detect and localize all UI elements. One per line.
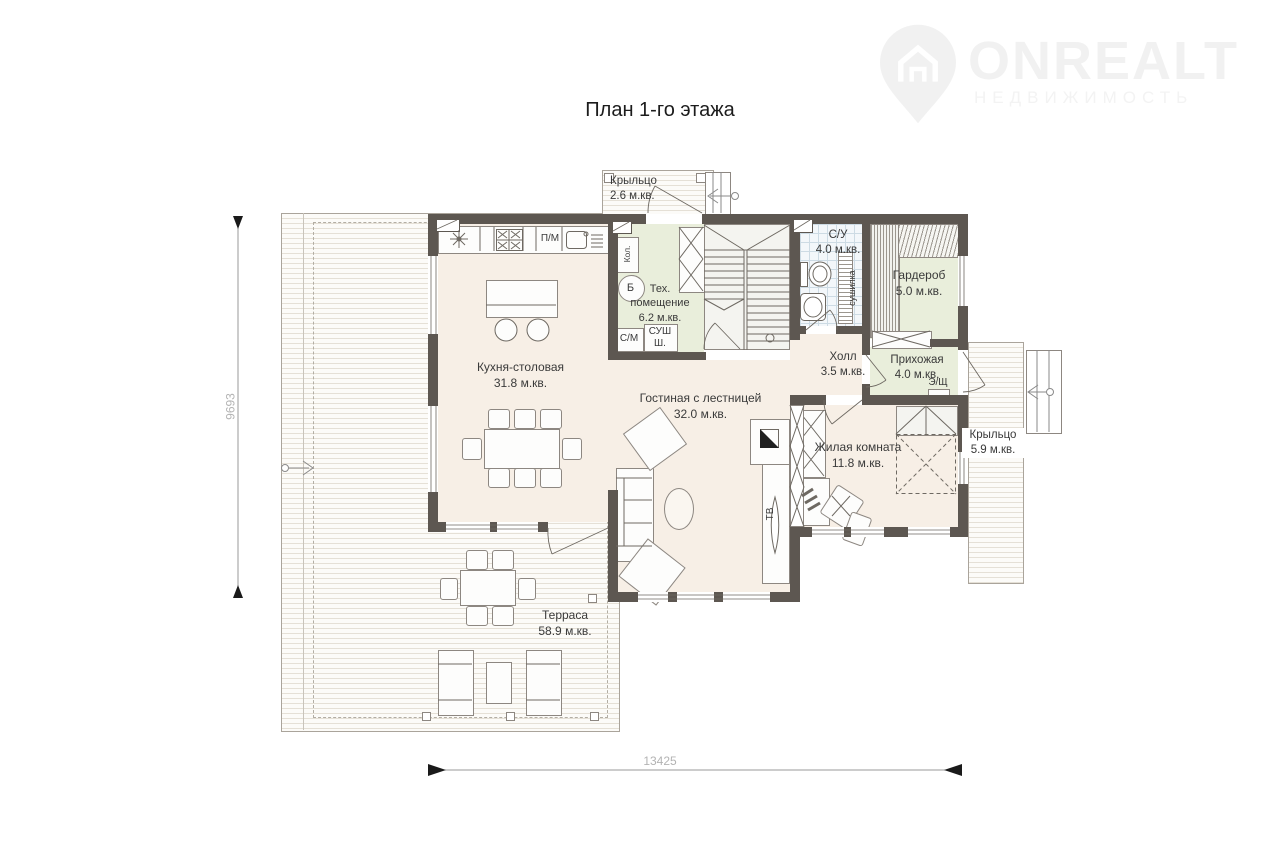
room-label-kitchen: Кухня-столовая 31.8 м.кв. [448, 360, 593, 391]
desk-chair-marks [832, 496, 850, 516]
room-area: 58.9 м.кв. [529, 624, 601, 640]
room-name: Жилая комната [798, 440, 918, 456]
island-stools [486, 305, 556, 341]
water-heater-label: Кол. [621, 236, 633, 272]
dimension-vertical: 9693 [224, 382, 237, 432]
room-name: Терраса [529, 608, 601, 624]
room-area: 11.8 м.кв. [798, 456, 918, 472]
toilet-icon [801, 262, 832, 287]
room-area: 6.2 м.кв. [626, 311, 694, 325]
room-label-hall: Холл 3.5 м.кв. [811, 350, 875, 380]
room-label-porch-top: Крыльцо 2.6 м.кв. [610, 174, 680, 204]
room-area: 32.0 м.кв. [628, 407, 773, 423]
floor-plan-page: ONREALT НЕДВИЖИМОСТЬ План 1-го этажа [0, 0, 1280, 854]
room-label-living: Гостиная с лестницей 32.0 м.кв. [628, 391, 773, 422]
entry-arrow-terrace [282, 461, 314, 475]
fireplace-icon [760, 429, 779, 448]
electric-panel-label: Э/Щ [916, 377, 960, 389]
tv-label: ТВ [764, 499, 776, 529]
room-label-wc: С/У 4.0 м.кв. [812, 228, 864, 258]
room-area: 5.0 м.кв. [881, 284, 957, 300]
washing-machine-label: С/М [616, 333, 642, 345]
room-name: Гостиная с лестницей [628, 391, 773, 407]
sofa-lines [616, 478, 652, 546]
dimension-horizontal: 13425 [615, 754, 705, 770]
room-label-wardrobe: Гардероб 5.0 м.кв. [881, 268, 957, 299]
room-area: 4.0 м.кв. [812, 243, 864, 258]
stove-icon [496, 229, 523, 251]
room-name: Гардероб [881, 268, 957, 284]
entry-arrow-top [708, 172, 739, 213]
staircase-treads [704, 225, 790, 351]
room-name: Крыльцо [962, 428, 1024, 443]
room-name: С/У [812, 228, 864, 243]
lounger-lines [438, 664, 560, 700]
room-name: Кухня-столовая [448, 360, 593, 376]
entry-arrow-right [1028, 350, 1054, 432]
room-area: 5.9 м.кв. [962, 443, 1024, 458]
room-name: Прихожая [876, 353, 958, 368]
room-label-bedroom: Жилая комната 11.8 м.кв. [798, 440, 918, 471]
room-name: Холл [811, 350, 875, 365]
room-name: Крыльцо [610, 174, 680, 189]
dishwasher-label: П/М [537, 233, 563, 245]
room-area: 31.8 м.кв. [448, 376, 593, 392]
sink-icon [567, 232, 604, 249]
boiler-label: Б [618, 281, 643, 295]
room-area: 2.6 м.кв. [610, 189, 680, 204]
room-label-terrace: Терраса 58.9 м.кв. [529, 608, 601, 639]
room-label-porch-right: Крыльцо 5.9 м.кв. [962, 428, 1024, 458]
desk-items [802, 489, 820, 510]
fridge-icon [450, 230, 468, 248]
drying-cabinet-label: СУШ Ш. [645, 326, 675, 349]
room-area: 3.5 м.кв. [811, 365, 875, 380]
dryer-rack-label: сушилка [846, 258, 858, 318]
